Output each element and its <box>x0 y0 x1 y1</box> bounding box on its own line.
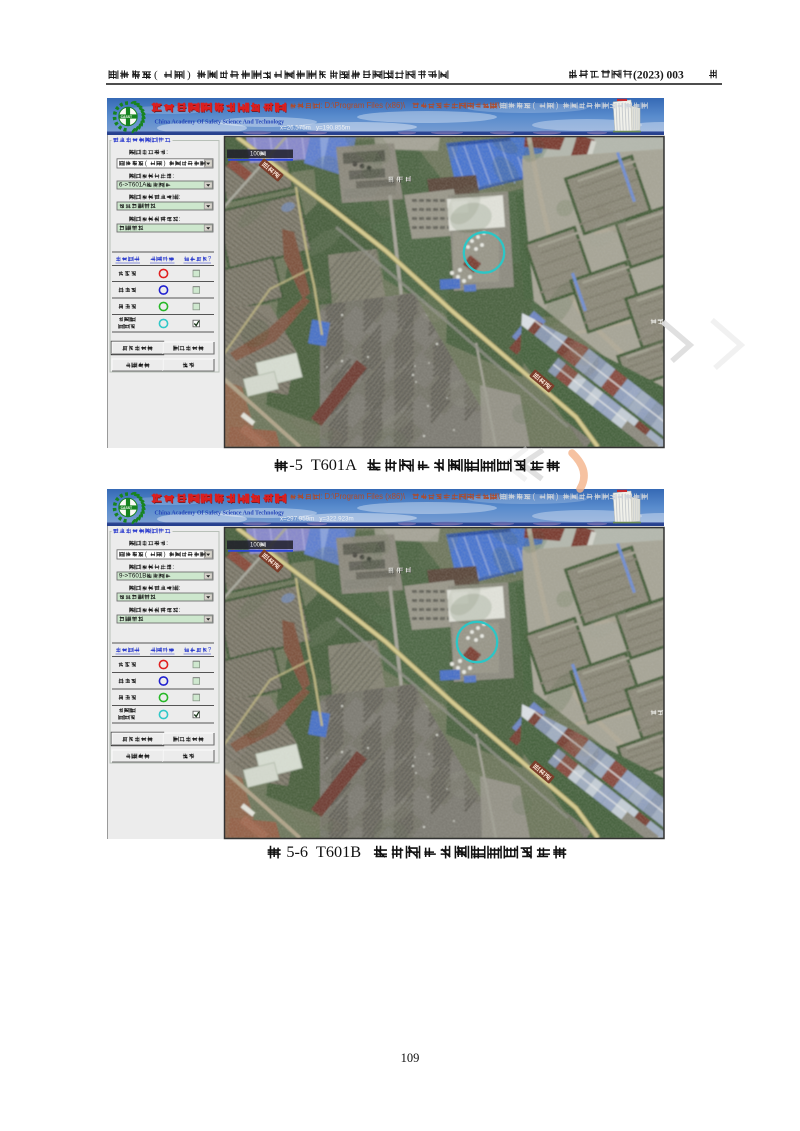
svg-text:(2023) 003: (2023) 003 <box>633 70 684 82</box>
svg-text::: : <box>166 540 168 547</box>
svg-text:109: 109 <box>401 1051 420 1065</box>
svg-text:): ) <box>164 551 166 558</box>
svg-text:): ) <box>164 160 166 167</box>
svg-text::: : <box>166 149 168 156</box>
svg-text:): ) <box>187 69 191 81</box>
svg-text::: : <box>179 194 181 201</box>
svg-text::: : <box>172 173 174 180</box>
svg-text:x=297.959m y=322.923m: x=297.959m y=322.923m <box>280 516 354 523</box>
svg-text::: : <box>172 564 174 571</box>
svg-text::: : <box>179 607 181 614</box>
svg-text:-5 T601A: -5 T601A <box>289 455 360 474</box>
svg-text:9->T601B: 9->T601B <box>119 573 146 580</box>
svg-text:5-6 T601B: 5-6 T601B <box>282 842 365 861</box>
svg-text::: : <box>179 216 181 223</box>
svg-text:(: ( <box>154 69 158 81</box>
svg-text:x=26.575m y=190.855m: x=26.575m y=190.855m <box>280 125 350 132</box>
svg-text::: : <box>179 585 181 592</box>
svg-text:6->T601A: 6->T601A <box>119 182 147 189</box>
